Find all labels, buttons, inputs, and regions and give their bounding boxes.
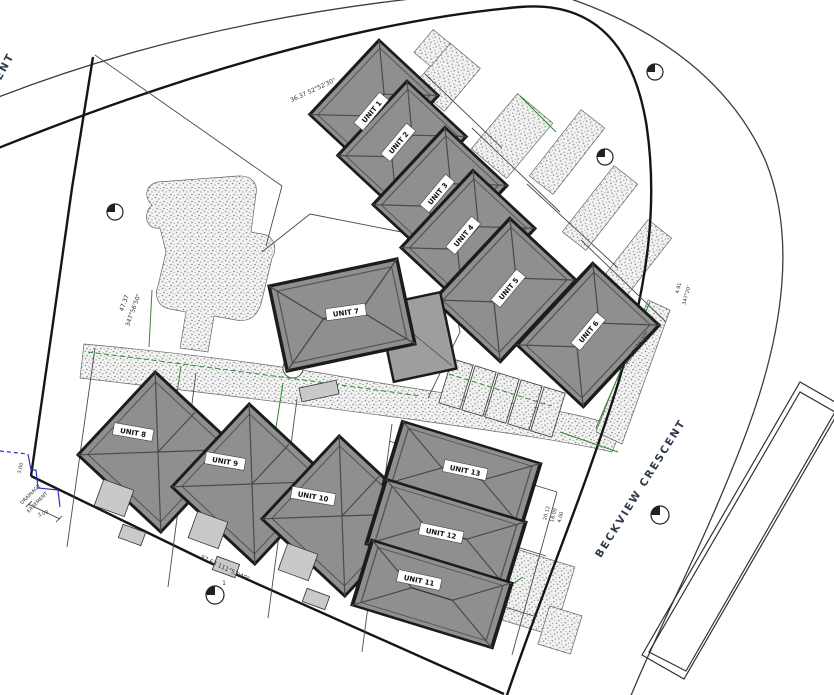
site-plan-drawing: UNIT 1 UNIT 2 UNIT 3 UNIT 4 UNIT 5 UNIT … — [0, 0, 834, 695]
boundary-west — [31, 57, 93, 476]
dim-south: 87.63 111°53'40" — [199, 554, 250, 583]
gravel-strip — [562, 166, 637, 251]
marker-number: 1 — [222, 580, 226, 587]
dim-east-short-bearing: 347°20' — [682, 285, 693, 306]
survey-marker — [647, 64, 663, 80]
street-label-left-partial: ENT — [0, 51, 17, 82]
road-island — [642, 382, 834, 679]
site-plan-sheet: UNIT 1 UNIT 2 UNIT 3 UNIT 4 UNIT 5 UNIT … — [0, 0, 834, 695]
lot-dim-3: 4.00 — [557, 511, 566, 523]
survey-marker — [651, 506, 669, 524]
easement-dim-a: 3.00 — [17, 462, 25, 474]
dim-east-short-distance: 4.91 — [675, 282, 684, 294]
survey-marker — [107, 204, 123, 220]
gravel-courtyard-blob — [146, 176, 274, 352]
survey-marker — [206, 586, 224, 604]
survey-marker — [597, 149, 613, 165]
easement-dim-b: 3.00 — [37, 509, 50, 518]
dim-west-distance: 47.37 — [118, 294, 131, 313]
